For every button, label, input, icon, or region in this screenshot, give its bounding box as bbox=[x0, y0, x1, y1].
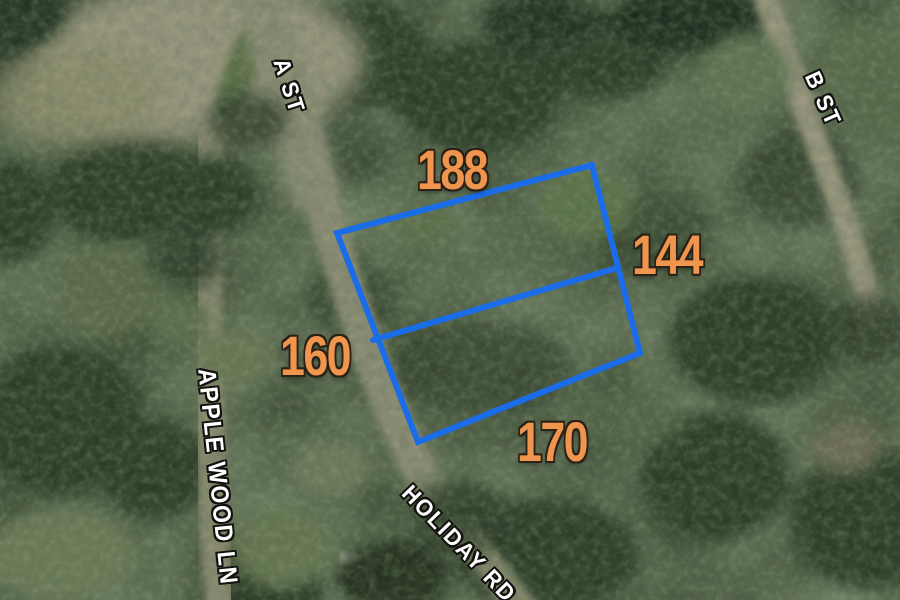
foliage-texture-light bbox=[0, 0, 900, 600]
parcel-dimension-left: 160 bbox=[280, 328, 350, 384]
parcel-dimension-right: 144 bbox=[632, 227, 702, 283]
aerial-parcel-map: 188 144 160 170 A ST B ST APPLE WOOD LN … bbox=[0, 0, 900, 600]
parcel-dimension-bottom: 170 bbox=[517, 414, 587, 470]
parcel-dimension-top: 188 bbox=[417, 142, 487, 198]
satellite-imagery bbox=[0, 0, 900, 600]
